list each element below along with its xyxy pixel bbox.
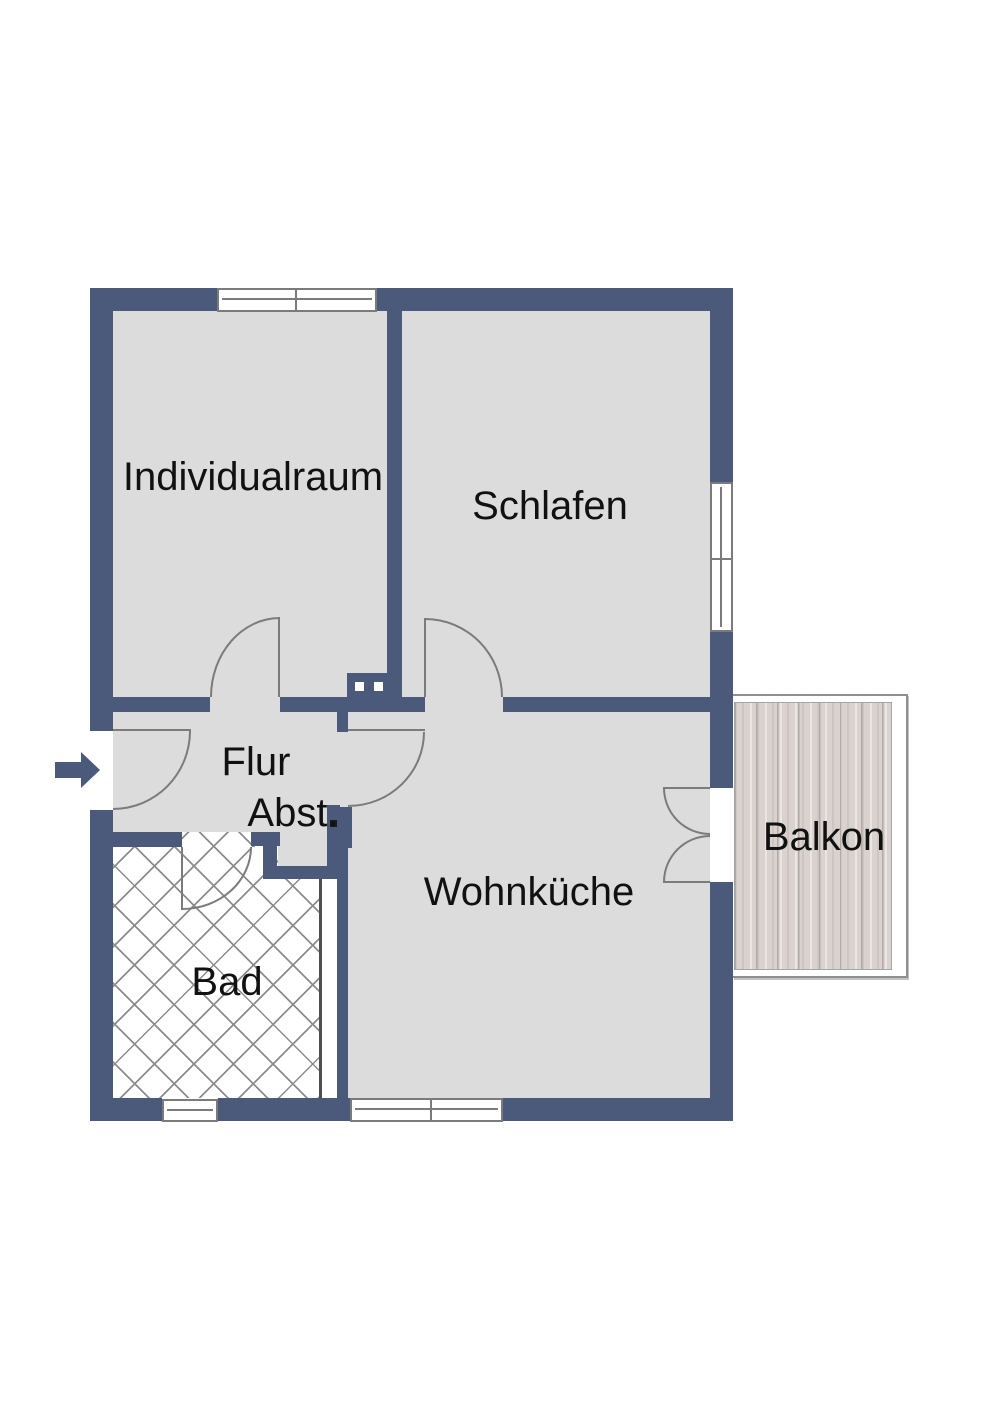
window-bottom-bad (162, 1099, 218, 1122)
bad-shaft-strip (322, 879, 337, 1098)
window-bottom-wohnkueche (350, 1098, 503, 1122)
window-glass-line (167, 1109, 213, 1111)
abst-notch (251, 847, 263, 866)
doorway-floor-individualraum (210, 697, 280, 712)
window-divider (712, 558, 731, 560)
entrance-arrow-icon (55, 762, 82, 778)
wall-bottom-right (503, 1098, 733, 1121)
window-divider (295, 290, 297, 310)
room-label-balkon: Balkon (763, 817, 885, 857)
utility-shaft (347, 673, 402, 712)
wall-bottom-left (90, 1098, 162, 1121)
window-glass-line (222, 298, 372, 300)
room-label-individualraum: Individualraum (123, 457, 383, 497)
wall-wohnkueche-west (337, 848, 348, 1098)
wohnkueche-door-leaf (348, 729, 425, 731)
room-label-bad: Bad (191, 962, 262, 1002)
room-label-abstellraum: Abst. (247, 793, 338, 833)
window-top-individualraum (217, 288, 377, 312)
wall-bottom-middle (218, 1098, 350, 1121)
shaft-opening-left (355, 682, 364, 691)
wall-left-upper (90, 288, 113, 731)
shaft-opening-right (374, 682, 383, 691)
wall-flur-wohnkueche-stub (337, 712, 348, 732)
room-floor-abstellraum (278, 832, 327, 866)
wall-horizontal-west (113, 697, 210, 712)
window-glass-line (720, 487, 722, 627)
floorplan-canvas: Individualraum Schlafen Flur Abst. Bad W… (0, 0, 1000, 1415)
room-label-flur: Flur (222, 742, 291, 782)
doorway-floor-schlafen (425, 697, 503, 712)
room-label-schlafen: Schlafen (472, 486, 628, 526)
wall-right-upper (710, 288, 733, 482)
window-glass-line (355, 1108, 498, 1110)
room-label-wohnkueche: Wohnküche (424, 872, 635, 912)
wall-abst-left (263, 846, 277, 866)
wall-horizontal-east (503, 697, 710, 712)
wall-bad-top (108, 832, 182, 847)
wall-right-middle (710, 632, 733, 788)
entrance-arrow-head-icon (81, 752, 100, 788)
wall-top (90, 288, 733, 311)
window-divider (430, 1100, 432, 1120)
window-right-schlafen (710, 482, 733, 632)
wall-individualraum-schlafen (387, 311, 402, 712)
wall-left-lower (90, 810, 113, 1121)
balcony-door-opening (710, 788, 733, 882)
wall-right-lower (710, 882, 733, 1121)
